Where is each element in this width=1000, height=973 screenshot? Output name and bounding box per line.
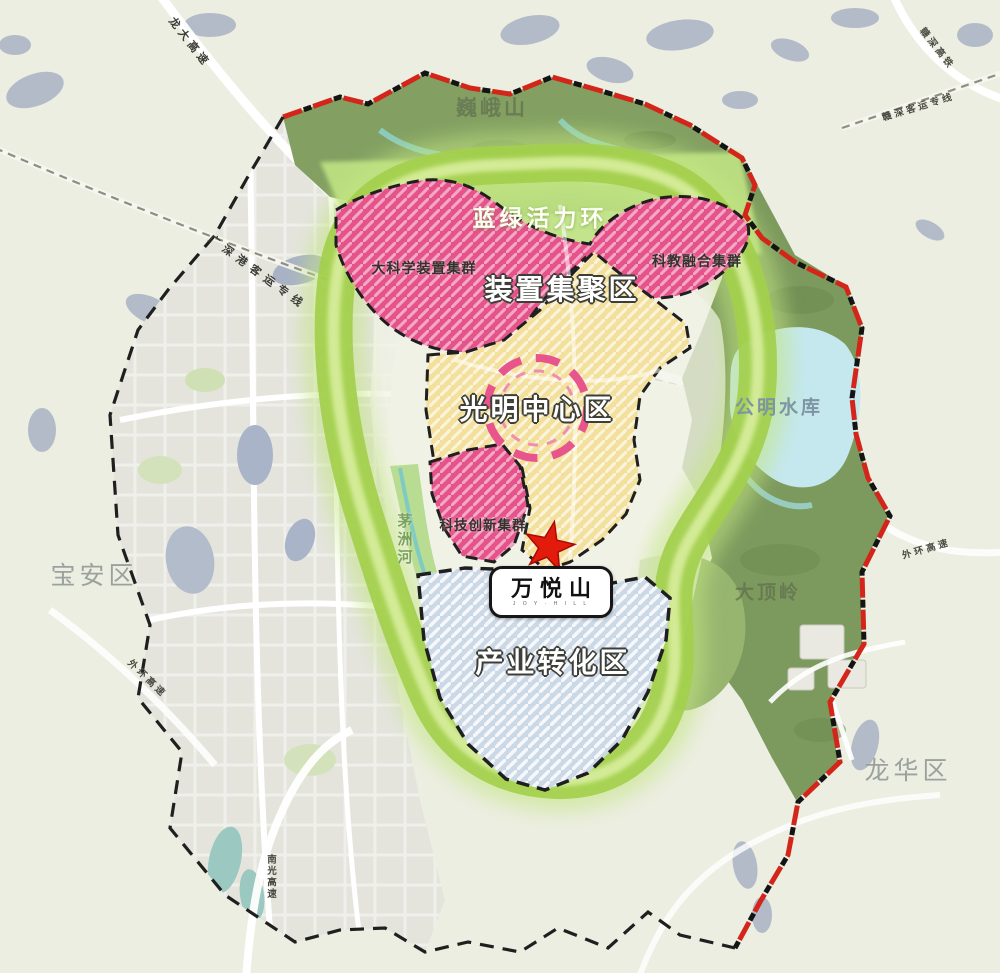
basemap-svg — [0, 0, 1000, 973]
planning-map: 巍峨山 蓝绿活力环 大科学装置集群 装置集聚区 科教融合集群 光明中心区 科技创… — [0, 0, 1000, 973]
